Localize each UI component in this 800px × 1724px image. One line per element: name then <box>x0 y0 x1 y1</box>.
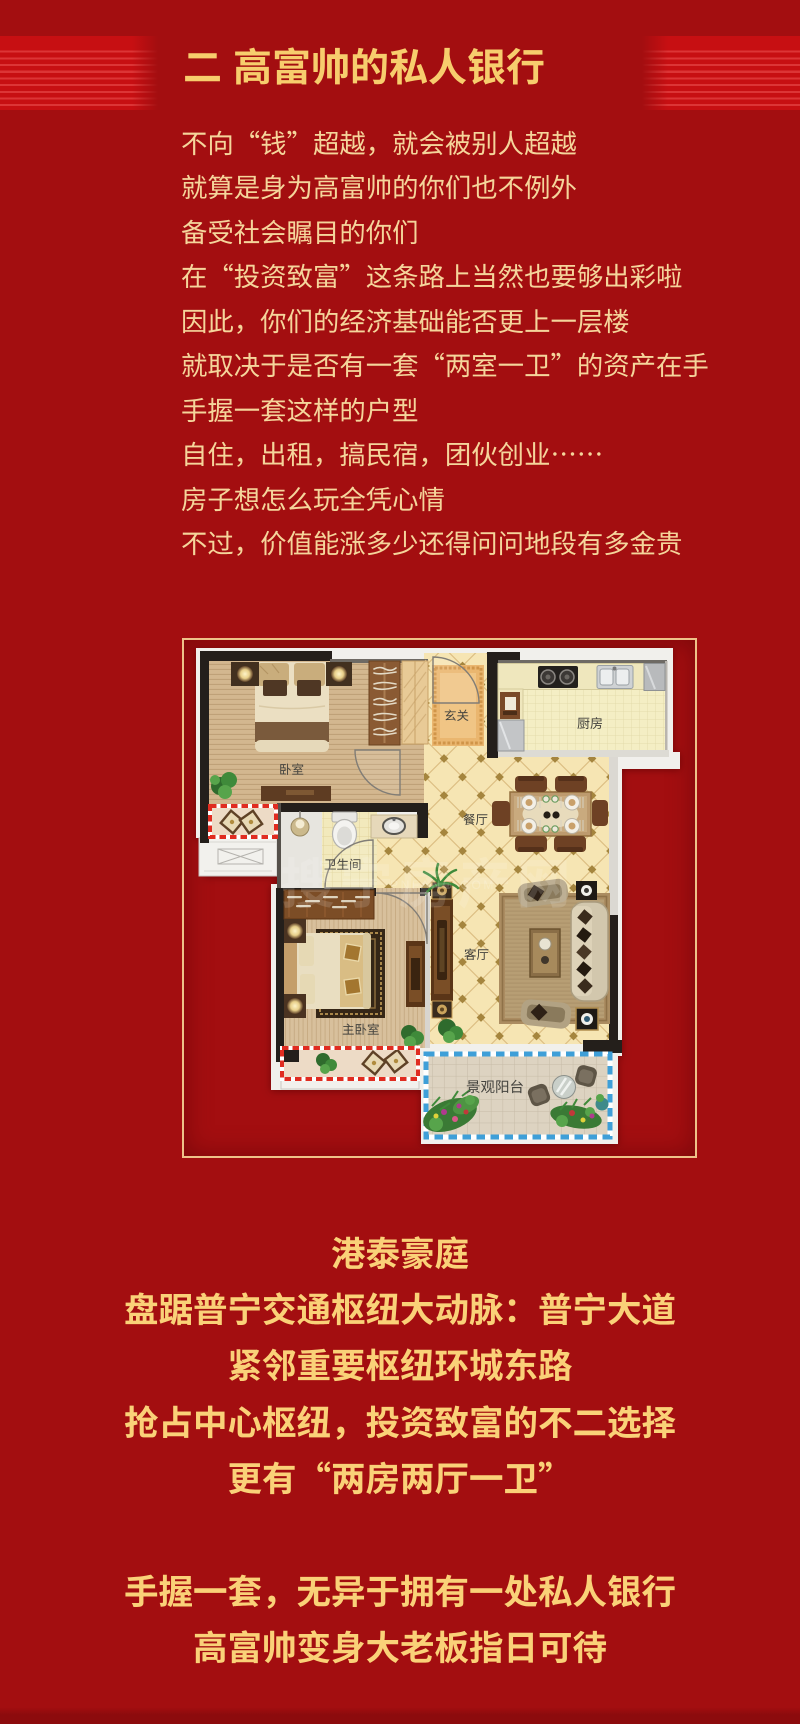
svg-text:厨房: 厨房 <box>577 713 603 732</box>
svg-text:景观阳台: 景观阳台 <box>466 1076 524 1097</box>
svg-text:主卧室: 主卧室 <box>342 1019 380 1038</box>
svg-text:餐厅: 餐厅 <box>463 809 488 828</box>
svg-text:客厅: 客厅 <box>464 944 489 963</box>
svg-text:PNFANG.COM: PNFANG.COM <box>390 876 496 893</box>
svg-text:卧室: 卧室 <box>279 759 304 778</box>
svg-text:玄关: 玄关 <box>444 705 469 724</box>
